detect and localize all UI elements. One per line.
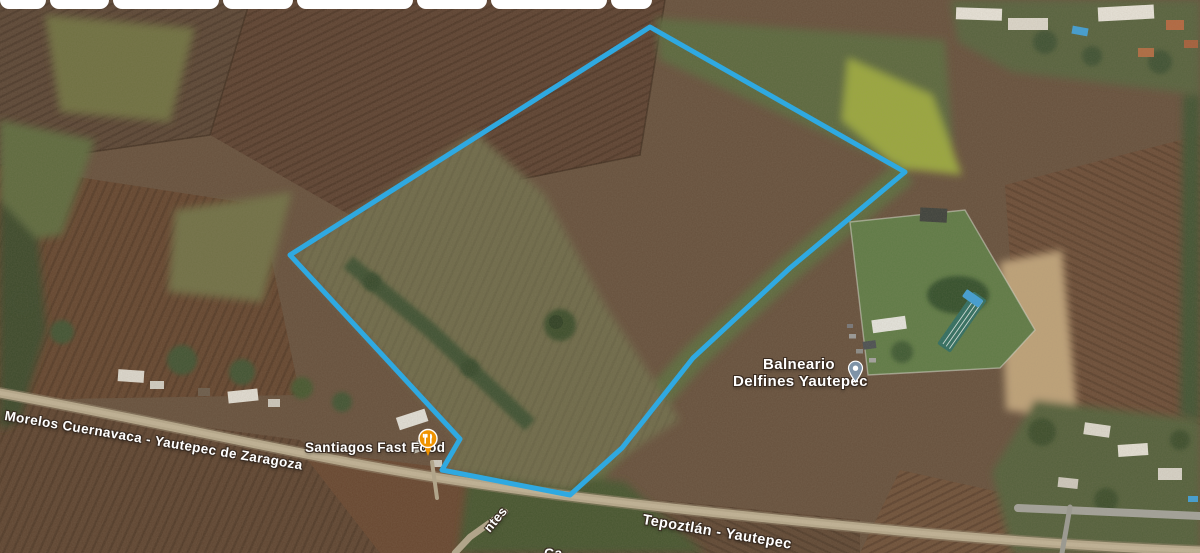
top-chip[interactable] bbox=[50, 0, 109, 9]
top-chip[interactable] bbox=[223, 0, 293, 9]
poi-label-balneario-line1: Balneario bbox=[733, 356, 865, 373]
satellite-imagery bbox=[0, 0, 1200, 553]
top-chip[interactable] bbox=[417, 0, 487, 9]
top-chip[interactable] bbox=[491, 0, 607, 9]
partial-label-fragment: Ca bbox=[544, 545, 563, 553]
restaurant-pin-icon[interactable] bbox=[417, 428, 439, 459]
top-chip[interactable] bbox=[0, 0, 46, 9]
top-chip[interactable] bbox=[611, 0, 652, 9]
map-canvas[interactable]: Morelos Cuernavaca - Yautepec de Zaragoz… bbox=[0, 0, 1200, 553]
top-chip[interactable] bbox=[113, 0, 219, 9]
place-pin-icon[interactable] bbox=[847, 360, 864, 383]
poi-label-balneario[interactable]: Balneario Delfines Yautepec bbox=[733, 356, 865, 390]
poi-label-balneario-line2: Delfines Yautepec bbox=[733, 373, 865, 390]
top-chip[interactable] bbox=[297, 0, 413, 9]
